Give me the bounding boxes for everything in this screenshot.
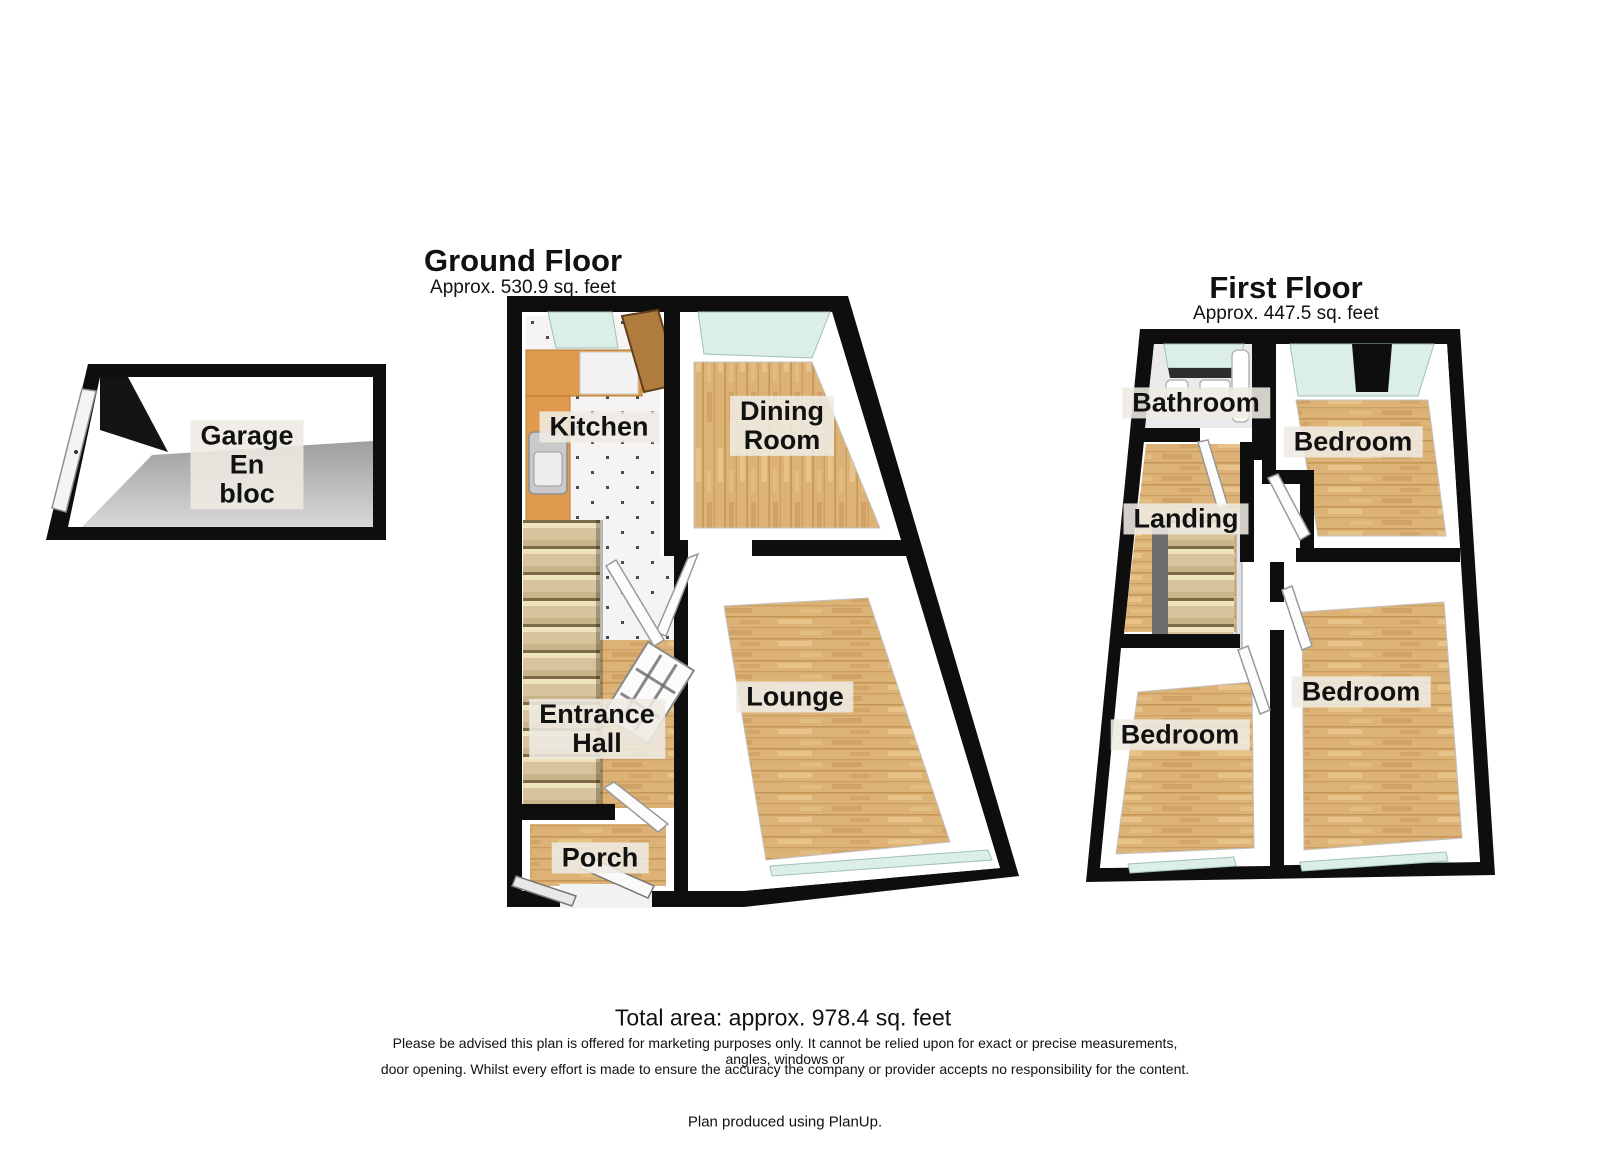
kitchen-window-glass xyxy=(548,312,618,348)
room-label-dining-room: Dining Room xyxy=(730,396,834,456)
garage-door-handle xyxy=(74,450,78,454)
bedroom-back-left-floor xyxy=(1116,682,1254,854)
bedroom-front-floor xyxy=(1296,400,1446,536)
room-label-kitchen: Kitchen xyxy=(539,411,658,442)
kitchen-sink-bowl xyxy=(534,452,562,486)
first-floor-title: First Floor xyxy=(1209,270,1362,306)
kitchen-appliance xyxy=(580,352,638,394)
room-label-porch: Porch xyxy=(552,842,649,873)
room-label-bedroom-back-right: Bedroom xyxy=(1292,676,1431,707)
room-label-bedroom-front: Bedroom xyxy=(1284,426,1423,457)
total-area-text: Total area: approx. 978.4 sq. feet xyxy=(615,1005,951,1032)
wall-bedroom-front-bottom xyxy=(1296,548,1460,562)
credit-text: Plan produced using PlanUp. xyxy=(688,1114,882,1131)
disclaimer-line-2: door opening. Whilst every effort is mad… xyxy=(381,1061,1189,1077)
room-label-garage: Garage En bloc xyxy=(190,420,303,509)
wall-bedrooms-divider xyxy=(1270,630,1284,866)
wall-dining-lounge-left xyxy=(664,540,688,556)
room-label-entrance-hall: Entrance Hall xyxy=(529,699,665,759)
room-label-bedroom-back-left: Bedroom xyxy=(1111,719,1250,750)
wall-bedrooms-divider-stub xyxy=(1270,562,1284,602)
dining-window-glass xyxy=(698,312,830,358)
first-floor-subtitle: Approx. 447.5 sq. feet xyxy=(1193,303,1379,325)
ground-floor-plan xyxy=(507,296,1019,908)
ground-floor-subtitle: Approx. 530.9 sq. feet xyxy=(430,277,616,299)
wall-dining-lounge-right xyxy=(752,540,909,556)
bedroom-back-right-floor xyxy=(1302,602,1462,850)
wall-bathroom-bottom xyxy=(1143,428,1200,442)
ground-floor-title: Ground Floor xyxy=(424,243,622,279)
staircase-edge xyxy=(596,520,603,808)
bedroom-front-window-pier xyxy=(1352,344,1392,392)
wall-landing-right xyxy=(1240,442,1254,562)
room-label-lounge: Lounge xyxy=(736,681,853,712)
staircase xyxy=(523,520,600,808)
wall-hall-porch xyxy=(507,804,615,820)
room-label-landing: Landing xyxy=(1124,503,1249,534)
floorplan-canvas xyxy=(0,0,1600,1163)
wall-bedroom-back-left-top xyxy=(1121,634,1240,648)
wall-kitchen-dining xyxy=(664,312,680,556)
room-label-bathroom: Bathroom xyxy=(1122,387,1270,418)
floorplan-page: Ground Floor Approx. 530.9 sq. feet Firs… xyxy=(0,0,1600,1163)
bathroom-window-ledge xyxy=(1168,368,1238,378)
